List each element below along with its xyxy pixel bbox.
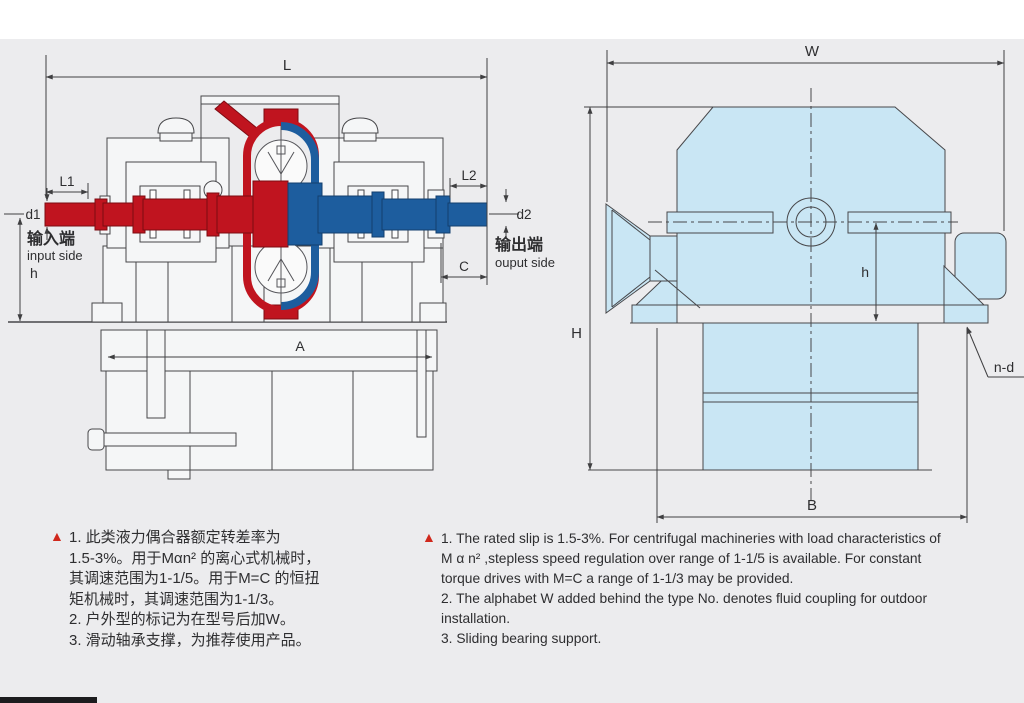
note-marker-triangle-icon: ▲ [422,530,436,544]
base-tank [88,330,437,479]
output-side-label-cn: 输出端 [495,235,543,254]
left-view-side-section: L L1 L2 d1 d2 h C A 输入端 input side 输出端 o… [4,55,555,479]
note-en-line: 3. Sliding bearing support. [441,629,1014,649]
note-en-line: torque drives with M=C a range of 1-1/3 … [441,569,1014,589]
note-cn-line: 1.5-3%。用于Mαn² 的离心式机械时， [69,549,390,570]
note-cn-line: 1. 此类液力偶合器额定转差率为 [69,528,390,549]
dim-label-C: C [459,259,469,274]
dim-label-L: L [283,57,291,74]
dim-label-n-d: n-d [994,359,1014,375]
dim-label-d2: d2 [516,207,531,222]
output-side-label-en: ouput side [495,255,555,270]
right-view-end-view: W H h B n-d [571,43,1024,523]
note-en-line: 2. The alphabet W added behind the type … [441,589,1014,609]
housing-front [588,88,1006,500]
note-en-line: 1. The rated slip is 1.5-3%. For centrif… [441,529,1014,549]
input-side-label-cn: 输入端 [27,229,75,248]
page-corner-mark [0,697,97,703]
dim-label-L1: L1 [59,174,74,189]
dim-label-B: B [807,497,817,514]
dim-label-H: H [571,325,582,342]
dim-label-d1: d1 [25,207,40,222]
note-cn-line: 2. 户外型的标记为在型号后加W。 [69,610,390,631]
catalog-diagram-page: L L1 L2 d1 d2 h C A 输入端 input side 输出端 o… [0,0,1024,703]
note-cn-line: 矩机械时，其调速范围为1-1/3。 [69,590,390,611]
left-foot [632,305,677,323]
note-marker-triangle-icon: ▲ [50,529,64,543]
note-en-line: M α n² ,stepless speed regulation over r… [441,549,1014,569]
dim-label-h-right: h [861,264,869,280]
input-funnel-bracket [606,204,650,313]
input-side-label-en: input side [27,248,83,263]
page-top-white-band [0,0,1024,39]
dim-label-A: A [295,338,305,354]
right-foot [944,305,988,323]
notes-chinese: ▲ 1. 此类液力偶合器额定转差率为 1.5-3%。用于Mαn² 的离心式机械时… [50,528,390,652]
dim-label-L2: L2 [461,168,476,183]
dim-label-h-left: h [30,265,38,281]
dim-label-W: W [805,43,820,60]
note-cn-line: 其调速范围为1-1/5。用于M=C 的恒扭 [69,569,390,590]
note-en-line: installation. [441,609,1014,629]
notes-english: ▲ 1. The rated slip is 1.5-3%. For centr… [422,529,1014,649]
note-cn-line: 3. 滑动轴承支撑，为推荐使用产品。 [69,631,390,652]
